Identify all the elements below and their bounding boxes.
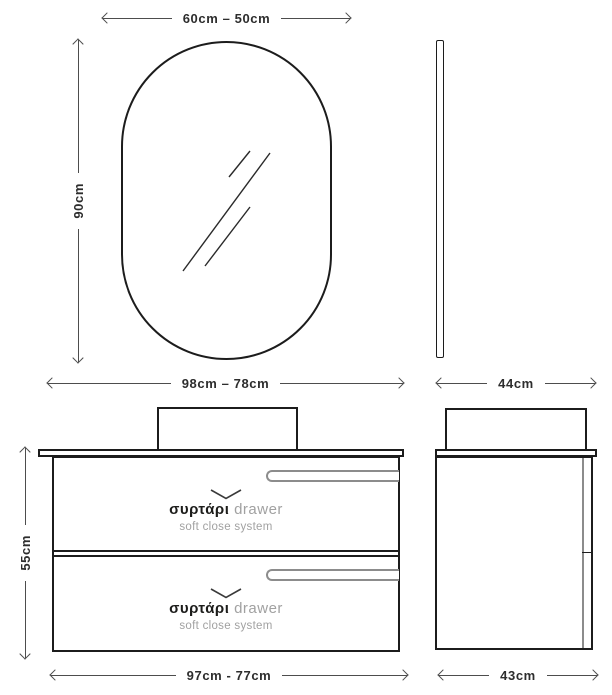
dim-line	[103, 18, 172, 19]
drawer-handle	[266, 569, 399, 581]
drawer-subtitle: soft close system	[54, 619, 398, 633]
dim-line	[25, 581, 26, 658]
mirror-side-view	[436, 40, 444, 358]
mirror-reflection-lines	[123, 43, 330, 358]
arrow-up-icon	[72, 38, 83, 49]
vanity-dimension-diagram: 60cm – 50cm 90cm 98cm – 78cm 44cm	[0, 0, 612, 695]
mirror-front-view	[121, 41, 332, 360]
dim-label-vanity-bottom-width: 97cm - 77cm	[176, 669, 283, 682]
arrow-right-icon	[587, 669, 598, 680]
basin-side-view	[445, 408, 587, 451]
dim-vanity-top-width: 98cm – 78cm	[48, 375, 403, 391]
arrow-right-icon	[393, 377, 404, 388]
dim-mirror-width: 60cm – 50cm	[103, 10, 350, 26]
dim-vanity-bottom-width: 97cm - 77cm	[51, 667, 407, 683]
dim-line	[51, 675, 176, 676]
dim-vanity-depth: 43cm	[439, 667, 597, 683]
dim-mirror-depth: 44cm	[437, 375, 595, 391]
cabinet-front-view: συρτάρι drawer soft close system συρτάρι…	[52, 456, 400, 652]
dim-line	[25, 448, 26, 525]
drawer-bottom: συρτάρι drawer soft close system	[54, 555, 398, 650]
dim-vanity-height: 55cm	[17, 448, 33, 658]
dim-line	[282, 675, 407, 676]
dim-line	[48, 383, 171, 384]
drawer-label-english: drawer	[234, 501, 283, 518]
dim-label-mirror-width: 60cm – 50cm	[172, 12, 282, 25]
arrow-up-icon	[19, 446, 30, 457]
arrow-left-icon	[46, 377, 57, 388]
arrow-down-icon	[19, 648, 30, 659]
drawer-label-english: drawer	[234, 600, 283, 617]
drawer-subtitle: soft close system	[54, 520, 398, 534]
arrow-right-icon	[397, 669, 408, 680]
drawer-caption: συρτάρι drawer soft close system	[54, 600, 398, 633]
dim-mirror-height: 90cm	[70, 40, 86, 362]
arrow-right-icon	[585, 377, 596, 388]
dim-label-vanity-top-width: 98cm – 78cm	[171, 377, 281, 390]
dim-label-mirror-height: 90cm	[72, 173, 85, 229]
drawer-split-tick	[582, 552, 591, 553]
arrow-down-icon	[72, 352, 83, 363]
dim-line	[78, 40, 79, 173]
arrow-left-icon	[437, 669, 448, 680]
basin-front-view	[157, 407, 298, 451]
drawer-label-greek: συρτάρι	[169, 501, 229, 518]
arrow-left-icon	[101, 12, 112, 23]
dim-label-vanity-height: 55cm	[19, 525, 32, 581]
front-panel-edge-line	[582, 458, 584, 648]
dim-label-mirror-depth: 44cm	[487, 377, 545, 390]
dim-line	[78, 229, 79, 362]
drawer-label-greek: συρτάρι	[169, 600, 229, 617]
drawer-handle	[266, 470, 399, 482]
arrow-right-icon	[340, 12, 351, 23]
chevron-down-icon	[210, 588, 242, 599]
arrow-left-icon	[49, 669, 60, 680]
drawer-top: συρτάρι drawer soft close system	[54, 458, 398, 552]
dim-label-vanity-depth: 43cm	[489, 669, 547, 682]
cabinet-side-view	[435, 456, 593, 650]
chevron-down-icon	[210, 489, 242, 500]
arrow-left-icon	[435, 377, 446, 388]
dim-line	[280, 383, 403, 384]
drawer-caption: συρτάρι drawer soft close system	[54, 501, 398, 534]
